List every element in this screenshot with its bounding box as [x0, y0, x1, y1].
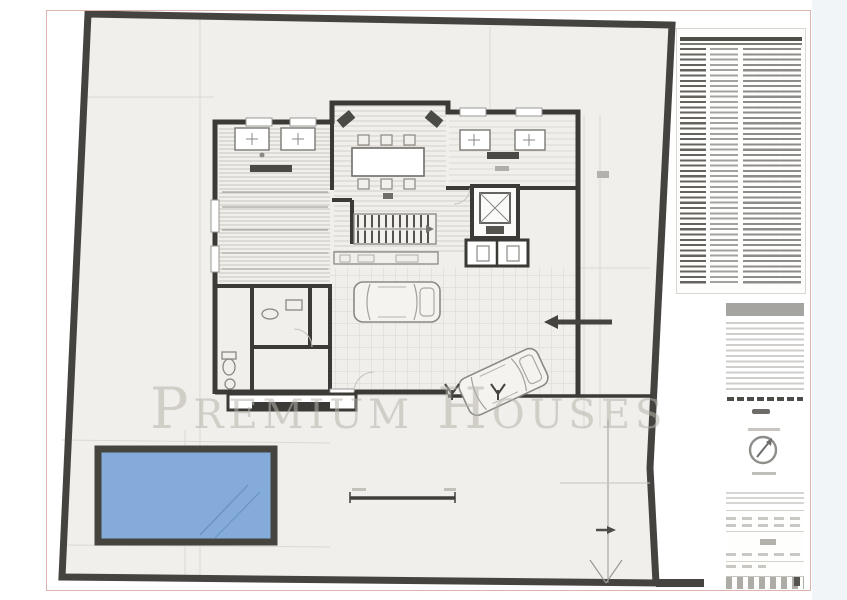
title-divider [726, 561, 804, 562]
title-block [726, 510, 804, 589]
title-row [726, 517, 804, 520]
schedule-column-names [710, 48, 738, 285]
bedroom-right-floor [449, 115, 576, 187]
schedule-subheader-bar [680, 43, 802, 45]
bathroom-top [466, 186, 528, 266]
title-row [726, 524, 804, 527]
title-divider [726, 531, 804, 532]
schedule-column-codes [680, 48, 706, 285]
revision-block [726, 492, 804, 504]
dining-table [352, 148, 424, 176]
room-schedule-panel [676, 28, 806, 294]
page-margin [812, 0, 847, 600]
schedule-header-bar [680, 37, 802, 41]
pool [98, 449, 274, 542]
title-row [726, 565, 766, 568]
bench [250, 165, 292, 172]
dashed-separator [727, 397, 803, 401]
title-row [726, 553, 804, 556]
schedule-column-values [743, 48, 801, 285]
terrace-marker [597, 171, 609, 178]
kitchen-counter [334, 252, 438, 264]
entry-porch [228, 394, 356, 410]
materials-bar [726, 303, 804, 316]
stamp-smudge [752, 409, 770, 414]
compass-label [752, 472, 776, 475]
drawing-sheet: Premium Houses [0, 0, 847, 600]
sheet-number-mark [794, 577, 800, 586]
stairs [354, 214, 436, 244]
title-stamp [760, 539, 776, 545]
title-footer [726, 576, 804, 589]
car-parked [354, 282, 440, 322]
notes-block [726, 322, 804, 392]
